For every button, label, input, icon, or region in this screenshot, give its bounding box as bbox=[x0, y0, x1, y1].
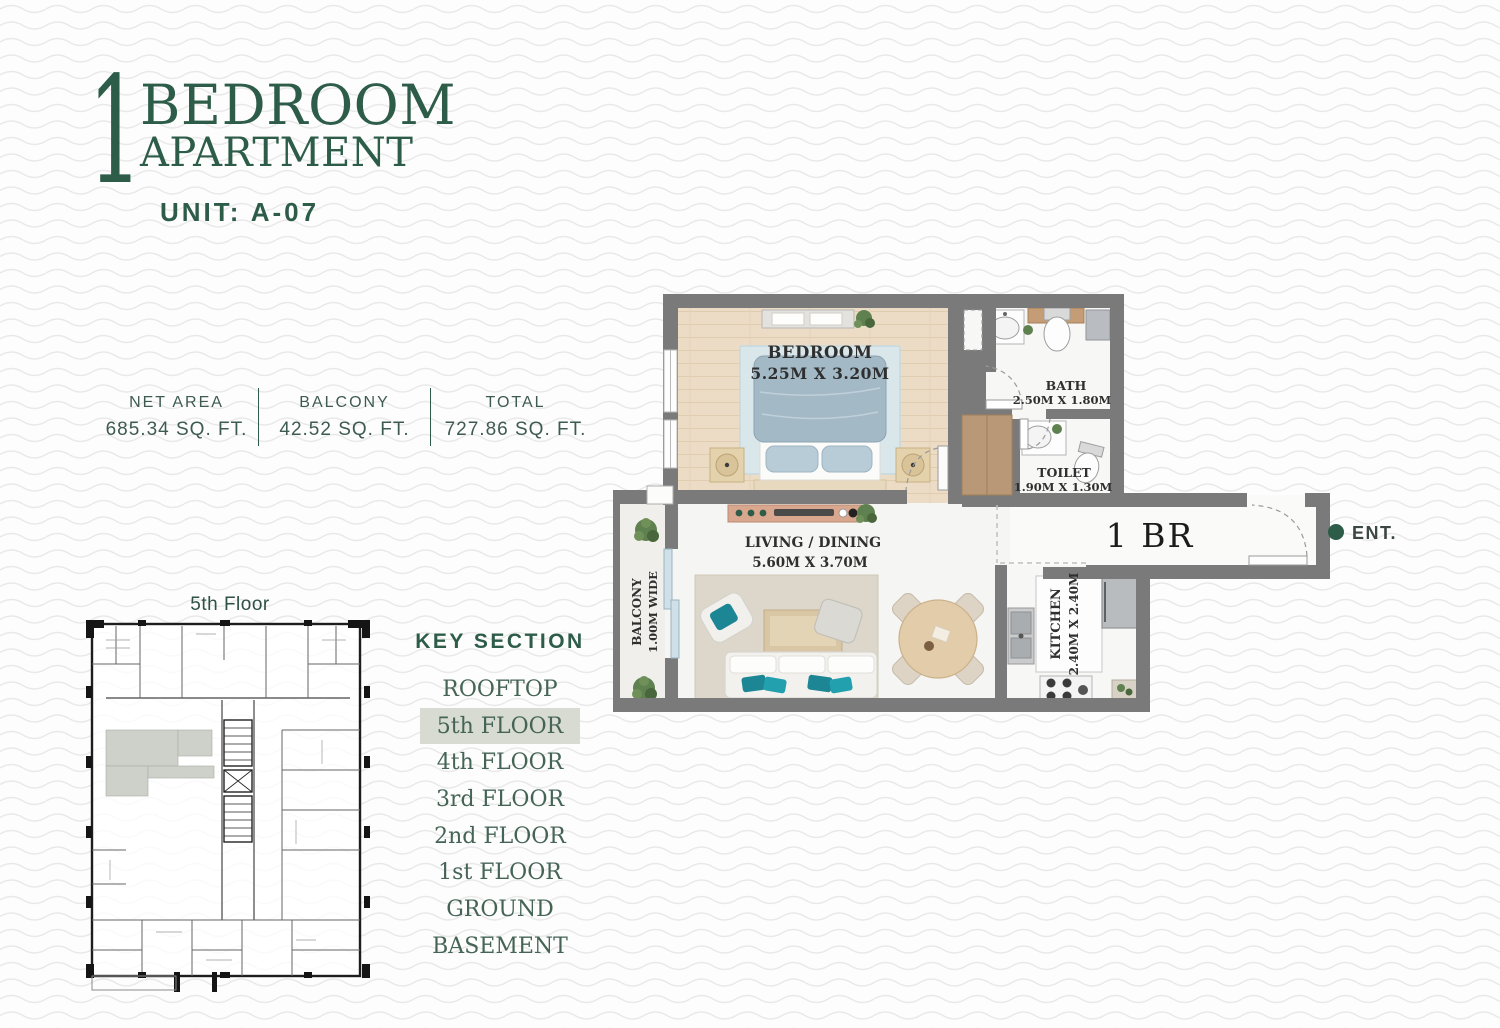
pillow-left bbox=[766, 446, 818, 472]
stat-label: NET AREA bbox=[129, 394, 224, 412]
balcony-dims: 1.00M WIDE bbox=[646, 571, 660, 653]
page: 1 BEDROOM APARTMENT UNIT: A-07 NET AREA … bbox=[0, 0, 1500, 1028]
area-stats: NET AREA 685.34 SQ. FT. BALCONY 42.52 SQ… bbox=[95, 388, 600, 446]
key-plan bbox=[86, 620, 370, 992]
stat-total: TOTAL 727.86 SQ. FT. bbox=[430, 388, 600, 446]
floor-plan: BEDROOM 5.25M X 3.20M BATH 2.50M X 1.80M… bbox=[600, 280, 1400, 730]
key-section-item-4th-floor[interactable]: 4th FLOOR bbox=[400, 744, 600, 781]
page-title-line2: APARTMENT bbox=[140, 132, 456, 174]
bedroom-label: BEDROOM bbox=[767, 343, 872, 362]
key-plan-stair-cores bbox=[224, 720, 252, 842]
stat-value: 727.86 SQ. FT. bbox=[445, 419, 587, 441]
pillow-right bbox=[822, 446, 872, 472]
entrance-label: ENT. bbox=[1352, 523, 1397, 543]
balcony-label: BALCONY bbox=[630, 578, 644, 646]
key-plan-basement-outline bbox=[92, 976, 176, 990]
toilet-dims: 1.90M X 1.30M bbox=[1014, 480, 1113, 494]
toilet-label: TOILET bbox=[1037, 465, 1091, 480]
bedroom-windows bbox=[664, 350, 677, 468]
balcony-notch bbox=[647, 486, 673, 504]
key-plan-caption: 5th Floor bbox=[80, 594, 380, 616]
key-section-item-basement[interactable]: BASEMENT bbox=[400, 928, 600, 965]
key-section: KEY SECTION ROOFTOP 5th FLOOR 4th FLOOR … bbox=[400, 630, 600, 965]
unit-type-label: 1 BR bbox=[1106, 516, 1195, 555]
stat-value: 685.34 SQ. FT. bbox=[106, 419, 248, 441]
toilet-plant-icon bbox=[1052, 424, 1062, 434]
fridge bbox=[1102, 578, 1138, 628]
apartment-count-number: 1 bbox=[88, 72, 143, 190]
key-section-item-rooftop[interactable]: ROOFTOP bbox=[400, 671, 600, 708]
stat-balcony: BALCONY 42.52 SQ. FT. bbox=[258, 388, 430, 446]
bedroom-dims: 5.25M X 3.20M bbox=[750, 364, 889, 383]
unit-number: UNIT: A-07 bbox=[160, 197, 319, 228]
living-dining-label: LIVING / DINING bbox=[745, 535, 881, 551]
stat-label: BALCONY bbox=[299, 394, 389, 412]
bath-plant-icon bbox=[1023, 325, 1033, 335]
key-section-item-5th-floor[interactable]: 5th FLOOR bbox=[420, 708, 580, 745]
shaft bbox=[964, 310, 982, 350]
entrance-marker: ENT. bbox=[1328, 523, 1397, 543]
bath-dims: 2.50M X 1.80M bbox=[1013, 393, 1112, 407]
page-title-line1: BEDROOM bbox=[140, 78, 456, 132]
dresser bbox=[762, 310, 854, 328]
kitchen-dims: 2.40M X 2.40M bbox=[1067, 573, 1081, 676]
stat-value: 42.52 SQ. FT. bbox=[279, 419, 409, 441]
key-section-heading: KEY SECTION bbox=[400, 630, 600, 654]
tv-console bbox=[728, 505, 862, 522]
key-section-item-ground[interactable]: GROUND bbox=[400, 891, 600, 928]
key-section-item-2nd-floor[interactable]: 2nd FLOOR bbox=[400, 818, 600, 855]
entrance-dot-icon bbox=[1328, 524, 1344, 540]
stat-label: TOTAL bbox=[485, 394, 545, 412]
key-section-item-3rd-floor[interactable]: 3rd FLOOR bbox=[400, 781, 600, 818]
kitchen-label: KITCHEN bbox=[1049, 588, 1064, 660]
dining-table-set bbox=[890, 591, 987, 688]
wardrobe bbox=[962, 415, 1012, 495]
sofa bbox=[725, 652, 877, 698]
kitchen-sink bbox=[1008, 608, 1034, 664]
bath-toilet bbox=[1044, 308, 1070, 351]
key-section-item-1st-floor[interactable]: 1st FLOOR bbox=[400, 854, 600, 891]
nightstand-left bbox=[710, 448, 744, 482]
floor-list: ROOFTOP 5th FLOOR 4th FLOOR 3rd FLOOR 2n… bbox=[400, 671, 600, 965]
bath-label: BATH bbox=[1046, 378, 1087, 393]
stat-net-area: NET AREA 685.34 SQ. FT. bbox=[95, 388, 258, 446]
living-dining-dims: 5.60M X 3.70M bbox=[752, 555, 868, 571]
